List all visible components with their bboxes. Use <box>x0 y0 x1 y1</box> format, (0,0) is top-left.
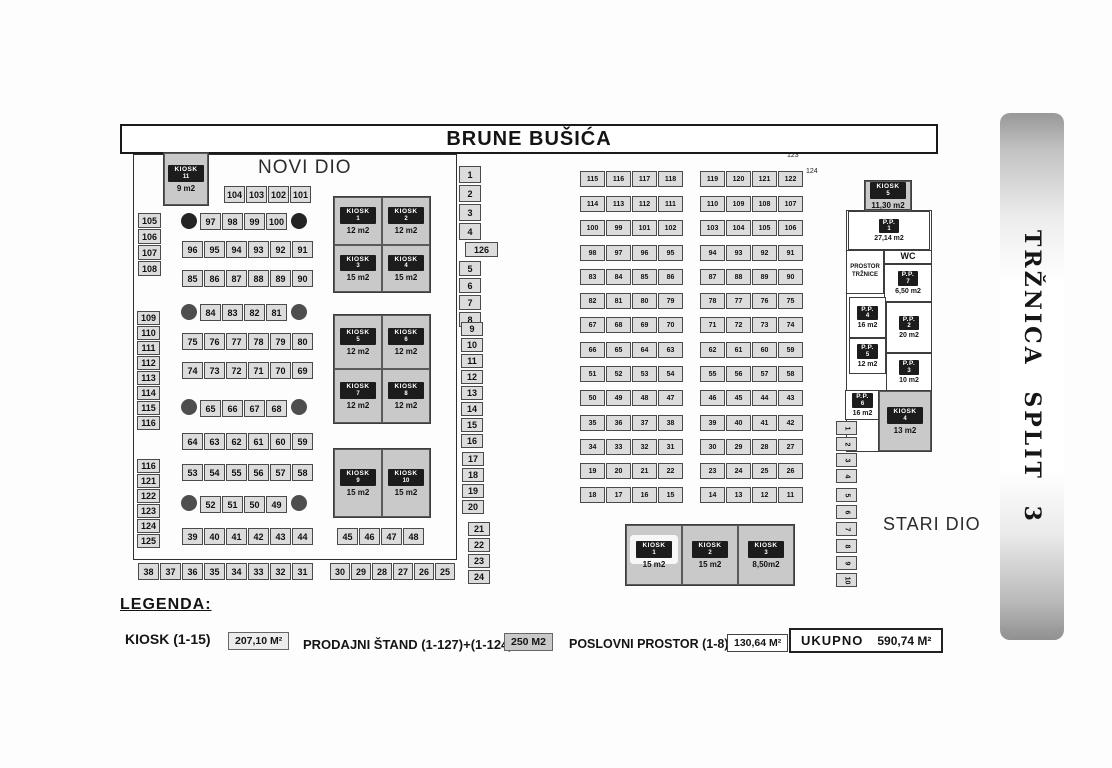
stall-16: 16 <box>461 434 483 448</box>
pp-box-3: P.P.310 m2 <box>886 353 932 391</box>
kiosk-area: 15 m2 <box>347 488 370 497</box>
stall-122: 122 <box>137 489 160 503</box>
stall-72: 72 <box>726 317 751 333</box>
kiosk-number: 11 <box>183 174 189 180</box>
stall-27: 27 <box>778 439 803 455</box>
kiosk-number: 1 <box>652 550 655 556</box>
stall-94: 94 <box>700 245 725 261</box>
stall-85: 85 <box>632 269 657 285</box>
stall-46: 46 <box>359 528 380 545</box>
kiosk-chip: KIOSK10 <box>388 469 423 486</box>
stall-75: 75 <box>182 333 203 350</box>
stall-38: 38 <box>138 563 159 580</box>
stall-64: 64 <box>182 433 203 450</box>
stall-47: 47 <box>658 390 683 406</box>
stall-63: 63 <box>204 433 225 450</box>
stall-strip: 84838281 <box>200 304 287 321</box>
prostor-trznice-box: PROSTOR TRŽNICE <box>846 250 884 294</box>
stall-7: 7 <box>459 295 481 310</box>
stall-2: 2 <box>459 185 481 202</box>
stall-20: 20 <box>462 500 484 514</box>
kiosk-area: 12 m2 <box>347 347 370 356</box>
stall-number: 6 <box>843 510 850 514</box>
stall-106: 106 <box>138 229 161 244</box>
stall-109: 109 <box>137 311 160 325</box>
stall-76: 76 <box>752 293 777 309</box>
stall-4: 4 <box>836 469 857 483</box>
stall-strip: 10099101102 <box>580 220 683 236</box>
stall-107: 107 <box>138 245 161 260</box>
stall-strip: 19202122 <box>580 463 683 479</box>
kiosk-3: KIOSK38,50m2 <box>738 525 794 585</box>
kiosk-10: KIOSK1015 m2 <box>382 449 430 517</box>
pp-chip: P.P.3 <box>899 360 920 375</box>
pillar-circle <box>291 304 307 320</box>
stall-95: 95 <box>658 245 683 261</box>
street-name: BRUNE BUŠIĆA <box>446 128 611 151</box>
stall-108: 108 <box>752 196 777 212</box>
stall-19: 19 <box>462 484 484 498</box>
stall-41: 41 <box>752 415 777 431</box>
kiosk-5: KIOSK511,30 m2 <box>865 181 911 211</box>
stall-99: 99 <box>606 220 631 236</box>
stall-66: 66 <box>222 400 243 417</box>
stall-102: 102 <box>658 220 683 236</box>
stall-22: 22 <box>468 538 490 552</box>
kiosk-number: 2 <box>708 550 711 556</box>
stall-strip: 126 <box>465 242 498 257</box>
stall-79: 79 <box>270 333 291 350</box>
stall-15: 15 <box>658 487 683 503</box>
stall-9: 9 <box>461 322 483 336</box>
kiosk-chip: KIOSK8 <box>388 382 423 399</box>
stall-11: 11 <box>778 487 803 503</box>
stall-1: 1 <box>459 166 481 183</box>
kiosk-chip: KIOSK1 <box>340 207 375 224</box>
stall-strip: 21222324 <box>468 522 490 584</box>
stall-65: 65 <box>606 342 631 358</box>
stall-number: 5 <box>843 493 850 497</box>
pp-area: 16 m2 <box>858 322 878 329</box>
stall-97: 97 <box>606 245 631 261</box>
stall-51: 51 <box>580 366 605 382</box>
kiosk-2: KIOSK215 m2 <box>682 525 738 585</box>
ref-label-123: 123 <box>787 152 799 159</box>
stall-103: 103 <box>700 220 725 236</box>
stall-strip: 302928272625 <box>330 563 455 580</box>
stall-21: 21 <box>632 463 657 479</box>
stall-114: 114 <box>580 196 605 212</box>
stall-65: 65 <box>200 400 221 417</box>
pp-area: 16 m2 <box>853 410 873 417</box>
stall-19: 19 <box>580 463 605 479</box>
stall-13: 13 <box>461 386 483 400</box>
stall-strip: 5678 <box>459 261 481 327</box>
legend-stand-label: PRODAJNI ŠTAND (1-127)+(1-124) <box>303 637 513 652</box>
stall-strip: 67686970 <box>580 317 683 333</box>
kiosk-block: KIOSK112 m2KIOSK212 m2KIOSK315 m2KIOSK41… <box>333 196 431 293</box>
stall-number: 4 <box>843 474 850 478</box>
kiosk-number: 6 <box>404 337 407 343</box>
stall-56: 56 <box>248 464 269 481</box>
kiosk-number: 1 <box>356 216 359 222</box>
stall-69: 69 <box>292 362 313 379</box>
stall-84: 84 <box>200 304 221 321</box>
stall-122: 122 <box>778 171 803 187</box>
kiosk-number: 2 <box>404 216 407 222</box>
stall-112: 112 <box>632 196 657 212</box>
stall-number: 7 <box>843 527 850 531</box>
stall-strip: 110109108107 <box>700 196 803 212</box>
stall-71: 71 <box>248 362 269 379</box>
stall-94: 94 <box>226 241 247 258</box>
kiosk-number: 8 <box>404 391 407 397</box>
stall-115: 115 <box>580 171 605 187</box>
stall-strip: 71727374 <box>700 317 803 333</box>
kiosk-number: 5 <box>356 337 359 343</box>
stall-120: 120 <box>726 171 751 187</box>
stall-89: 89 <box>270 270 291 287</box>
kiosk-5: KIOSK512 m2 <box>334 315 382 369</box>
stall-number: 3 <box>843 458 850 462</box>
stall-74: 74 <box>778 317 803 333</box>
legend-poslovni-label: POSLOVNI PROSTOR (1-8) <box>569 637 729 651</box>
stall-105: 105 <box>138 213 161 228</box>
pp-area: 27,14 m2 <box>874 235 904 242</box>
stall-126: 126 <box>465 242 498 257</box>
stall-97: 97 <box>200 213 221 230</box>
stall-62: 62 <box>700 342 725 358</box>
stall-45: 45 <box>726 390 751 406</box>
stall-70: 70 <box>658 317 683 333</box>
stall-8: 8 <box>836 539 857 553</box>
stall-strip: 18171615 <box>580 487 683 503</box>
stall-116: 116 <box>606 171 631 187</box>
stall-7: 7 <box>836 522 857 536</box>
stall-strip: 103104105106 <box>700 220 803 236</box>
stall-strip: 62616059 <box>700 342 803 358</box>
stall-109: 109 <box>726 196 751 212</box>
stall-102: 102 <box>268 186 289 203</box>
side-stall-stack: 1234 <box>836 421 857 483</box>
stall-73: 73 <box>204 362 225 379</box>
kiosk-chip: KIOSK2 <box>388 207 423 224</box>
stall-77: 77 <box>726 293 751 309</box>
stall-6: 6 <box>459 278 481 293</box>
stall-58: 58 <box>292 464 313 481</box>
pp-number: 6 <box>861 401 864 407</box>
stall-2: 2 <box>836 437 857 451</box>
kiosk-chip: KIOSK3 <box>748 541 783 558</box>
stall-72: 72 <box>226 362 247 379</box>
kiosk-number: 4 <box>903 416 906 422</box>
stall-number: 2 <box>843 442 850 446</box>
stall-81: 81 <box>606 293 631 309</box>
stall-87: 87 <box>226 270 247 287</box>
stall-110: 110 <box>700 196 725 212</box>
kiosk-block: KIOSK511,30 m2 <box>864 180 912 210</box>
stall-11: 11 <box>461 354 483 368</box>
legend-kiosk-label: KIOSK (1-15) <box>125 631 211 647</box>
pillar-circle <box>181 399 197 415</box>
stall-strip: 52515049 <box>200 496 287 513</box>
stall-52: 52 <box>200 496 221 513</box>
pp-area: 10 m2 <box>899 377 919 384</box>
novi-dio-label: NOVI DIO <box>258 157 352 179</box>
kiosk-area: 9 m2 <box>177 184 195 193</box>
stall-strip: 94939291 <box>700 245 803 261</box>
stall-61: 61 <box>248 433 269 450</box>
stall-18: 18 <box>580 487 605 503</box>
stall-67: 67 <box>580 317 605 333</box>
stall-36: 36 <box>606 415 631 431</box>
kiosk-area: 15 m2 <box>643 560 666 569</box>
stall-39: 39 <box>700 415 725 431</box>
stall-96: 96 <box>632 245 657 261</box>
kiosk-area: 13 m2 <box>894 426 917 435</box>
legend-stand-area: 250 M2 <box>504 633 553 651</box>
stall-47: 47 <box>381 528 402 545</box>
stall-strip: 98979695 <box>580 245 683 261</box>
stall-124: 124 <box>137 519 160 533</box>
stall-strip: 34333231 <box>580 439 683 455</box>
kiosk-number: 5 <box>886 191 889 197</box>
stall-strip: 119120121122 <box>700 171 803 187</box>
stall-67: 67 <box>244 400 265 417</box>
stall-strip: 78777675 <box>700 293 803 309</box>
stall-84: 84 <box>606 269 631 285</box>
stall-31: 31 <box>292 563 313 580</box>
kiosk-block: KIOSK119 m2 <box>163 152 209 206</box>
stall-78: 78 <box>700 293 725 309</box>
stall-54: 54 <box>658 366 683 382</box>
stall-12: 12 <box>752 487 777 503</box>
kiosk-6: KIOSK612 m2 <box>382 315 430 369</box>
stall-86: 86 <box>658 269 683 285</box>
stall-number: 10 <box>843 576 850 584</box>
stall-24: 24 <box>726 463 751 479</box>
stall-90: 90 <box>292 270 313 287</box>
pp-box-6: P.P.616 m2 <box>845 390 880 420</box>
stall-82: 82 <box>580 293 605 309</box>
pp-area: 6,50 m2 <box>895 288 921 295</box>
ref-label-124: 124 <box>806 168 818 175</box>
stall-80: 80 <box>632 293 657 309</box>
stall-123: 123 <box>137 504 160 518</box>
stall-22: 22 <box>658 463 683 479</box>
pp-chip: P.P.1 <box>879 219 900 234</box>
stall-strip: 35363738 <box>580 415 683 431</box>
stall-1: 1 <box>836 421 857 435</box>
stall-103: 103 <box>246 186 267 203</box>
stall-55: 55 <box>226 464 247 481</box>
stall-strip: 17181920 <box>462 452 484 514</box>
stall-41: 41 <box>226 528 247 545</box>
stall-32: 32 <box>632 439 657 455</box>
total-value: 590,74 M² <box>877 634 931 648</box>
stall-35: 35 <box>204 563 225 580</box>
stall-25: 25 <box>752 463 777 479</box>
stall-89: 89 <box>752 269 777 285</box>
kiosk-area: 15 m2 <box>395 488 418 497</box>
pillar-circle <box>181 304 197 320</box>
kiosk-4: KIOSK413 m2 <box>879 391 931 451</box>
stall-59: 59 <box>778 342 803 358</box>
stari-dio-label: STARI DIO <box>883 514 981 535</box>
stall-25: 25 <box>435 563 455 580</box>
stall-95: 95 <box>204 241 225 258</box>
stall-68: 68 <box>266 400 287 417</box>
stall-strip: 55565758 <box>700 366 803 382</box>
pillar-circle <box>181 495 197 511</box>
pp-area: 20 m2 <box>899 332 919 339</box>
stall-strip: 116121122123124125 <box>137 459 160 548</box>
kiosk-area: 12 m2 <box>395 347 418 356</box>
stall-strip: 46454443 <box>700 390 803 406</box>
pp-number: 2 <box>907 323 910 329</box>
stall-strip: 858687888990 <box>182 270 313 287</box>
pp-box-4: P.P.416 m2 <box>849 297 886 338</box>
kiosk-chip: KIOSK4 <box>388 255 423 272</box>
legend-heading: LEGENDA: <box>120 596 212 614</box>
stall-strip: 65666768 <box>200 400 287 417</box>
stall-83: 83 <box>222 304 243 321</box>
stall-62: 62 <box>226 433 247 450</box>
stall-51: 51 <box>222 496 243 513</box>
stall-strip: 979899100 <box>200 213 287 230</box>
stall-119: 119 <box>700 171 725 187</box>
kiosk-block: KIOSK512 m2KIOSK612 m2KIOSK712 m2KIOSK81… <box>333 314 431 424</box>
stall-37: 37 <box>632 415 657 431</box>
stall-58: 58 <box>778 366 803 382</box>
pp-box-7: P.P.76,50 m2 <box>884 264 932 302</box>
stall-64: 64 <box>632 342 657 358</box>
stall-strip: 30292827 <box>700 439 803 455</box>
stall-32: 32 <box>270 563 291 580</box>
stall-strip: 50494847 <box>580 390 683 406</box>
pp-chip: P.P.6 <box>852 393 873 408</box>
pillar-circle <box>291 399 307 415</box>
stall-83: 83 <box>580 269 605 285</box>
stall-57: 57 <box>270 464 291 481</box>
stall-46: 46 <box>700 390 725 406</box>
stall-106: 106 <box>778 220 803 236</box>
stall-strip: 83848586 <box>580 269 683 285</box>
side-stall-stack: 5678910 <box>836 488 857 587</box>
stall-strip: 3837363534333231 <box>138 563 313 580</box>
stall-81: 81 <box>266 304 287 321</box>
stall-91: 91 <box>292 241 313 258</box>
kiosk-block: KIOSK115 m2KIOSK215 m2KIOSK38,50m2 <box>625 524 795 586</box>
pp-box-1: P.P.127,14 m2 <box>848 211 930 250</box>
stall-104: 104 <box>224 186 245 203</box>
stall-30: 30 <box>330 563 350 580</box>
stall-49: 49 <box>606 390 631 406</box>
stall-4: 4 <box>459 223 481 240</box>
stall-38: 38 <box>658 415 683 431</box>
stall-118: 118 <box>658 171 683 187</box>
stall-92: 92 <box>752 245 777 261</box>
kiosk-1: KIOSK112 m2 <box>334 197 382 245</box>
legend-kiosk-area: 207,10 M² <box>228 632 289 650</box>
kiosk-number: 10 <box>403 478 410 484</box>
kiosk-chip: KIOSK3 <box>340 255 375 272</box>
stall-strip: 104103102101 <box>224 186 311 203</box>
stall-101: 101 <box>290 186 311 203</box>
pp-area: 12 m2 <box>858 361 878 368</box>
stall-5: 5 <box>836 488 857 502</box>
stall-14: 14 <box>700 487 725 503</box>
stall-strip: 66656463 <box>580 342 683 358</box>
stall-59: 59 <box>292 433 313 450</box>
legend-poslovni-area: 130,64 M² <box>727 634 788 652</box>
stall-115: 115 <box>137 401 160 415</box>
stall-45: 45 <box>337 528 358 545</box>
stall-99: 99 <box>244 213 265 230</box>
stall-39: 39 <box>182 528 203 545</box>
kiosk-chip: KIOSK6 <box>388 328 423 345</box>
kiosk-9: KIOSK915 m2 <box>334 449 382 517</box>
stall-78: 78 <box>248 333 269 350</box>
kiosk-area: 12 m2 <box>347 226 370 235</box>
kiosk-area: 15 m2 <box>395 273 418 282</box>
kiosk-11: KIOSK119 m2 <box>164 153 208 205</box>
stall-68: 68 <box>606 317 631 333</box>
stall-76: 76 <box>204 333 225 350</box>
stall-111: 111 <box>137 341 160 355</box>
stall-88: 88 <box>726 269 751 285</box>
stall-112: 112 <box>137 356 160 370</box>
stall-75: 75 <box>778 293 803 309</box>
pillar-circle <box>291 495 307 511</box>
stall-14: 14 <box>461 402 483 416</box>
stall-88: 88 <box>248 270 269 287</box>
pp-chip: P.P.5 <box>857 344 878 359</box>
kiosk-1: KIOSK115 m2 <box>626 525 682 585</box>
stall-44: 44 <box>292 528 313 545</box>
kiosk-2: KIOSK212 m2 <box>382 197 430 245</box>
stall-28: 28 <box>752 439 777 455</box>
kiosk-block: KIOSK915 m2KIOSK1015 m2 <box>333 448 431 518</box>
stall-27: 27 <box>393 563 413 580</box>
stall-15: 15 <box>461 418 483 432</box>
kiosk-area: 12 m2 <box>395 401 418 410</box>
stall-23: 23 <box>468 554 490 568</box>
stall-44: 44 <box>752 390 777 406</box>
kiosk-area: 11,30 m2 <box>871 201 904 210</box>
stall-13: 13 <box>726 487 751 503</box>
pillar-circle <box>291 213 307 229</box>
stall-3: 3 <box>836 453 857 467</box>
stall-31: 31 <box>658 439 683 455</box>
stall-strip: 82818079 <box>580 293 683 309</box>
stall-108: 108 <box>138 261 161 276</box>
stall-101: 101 <box>632 220 657 236</box>
stall-50: 50 <box>580 390 605 406</box>
kiosk-8: KIOSK812 m2 <box>382 369 430 423</box>
kiosk-chip: KIOSK4 <box>887 407 922 424</box>
stall-77: 77 <box>226 333 247 350</box>
stall-18: 18 <box>462 468 484 482</box>
street-banner: BRUNE BUŠIĆA <box>120 124 938 154</box>
stall-5: 5 <box>459 261 481 276</box>
kiosk-number: 7 <box>356 391 359 397</box>
stall-114: 114 <box>137 386 160 400</box>
stall-85: 85 <box>182 270 203 287</box>
stall-strip: 45464748 <box>337 528 424 545</box>
stall-20: 20 <box>606 463 631 479</box>
stall-12: 12 <box>461 370 483 384</box>
